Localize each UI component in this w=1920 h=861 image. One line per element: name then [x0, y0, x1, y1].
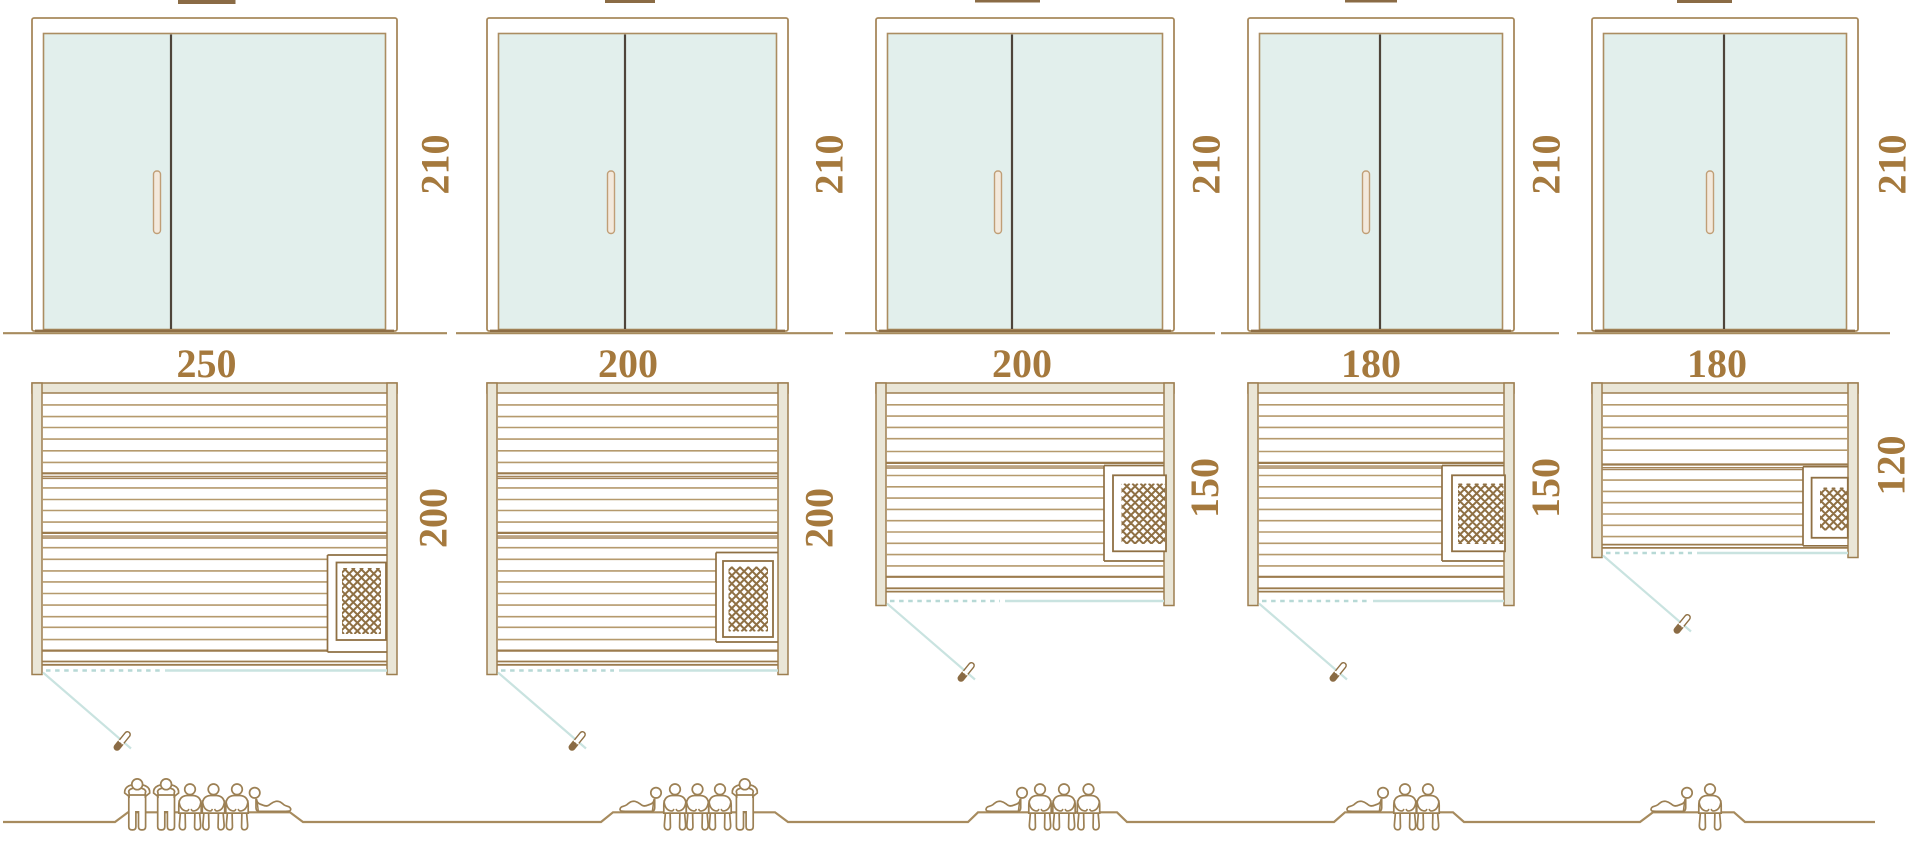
svg-text:210: 210: [1184, 135, 1229, 195]
svg-text:200: 200: [598, 341, 658, 386]
svg-text:210: 210: [1524, 135, 1569, 195]
svg-text:200: 200: [411, 488, 456, 548]
svg-text:150: 150: [1182, 458, 1227, 518]
svg-text:250: 250: [177, 341, 237, 386]
svg-text:200: 200: [992, 341, 1052, 386]
svg-text:180: 180: [1687, 341, 1747, 386]
svg-text:210: 210: [413, 135, 458, 195]
svg-text:210: 210: [1870, 135, 1915, 195]
svg-text:150: 150: [1523, 458, 1568, 518]
svg-text:180: 180: [1341, 341, 1401, 386]
svg-text:200: 200: [797, 488, 842, 548]
svg-text:120: 120: [1869, 436, 1914, 496]
svg-text:210: 210: [807, 135, 852, 195]
